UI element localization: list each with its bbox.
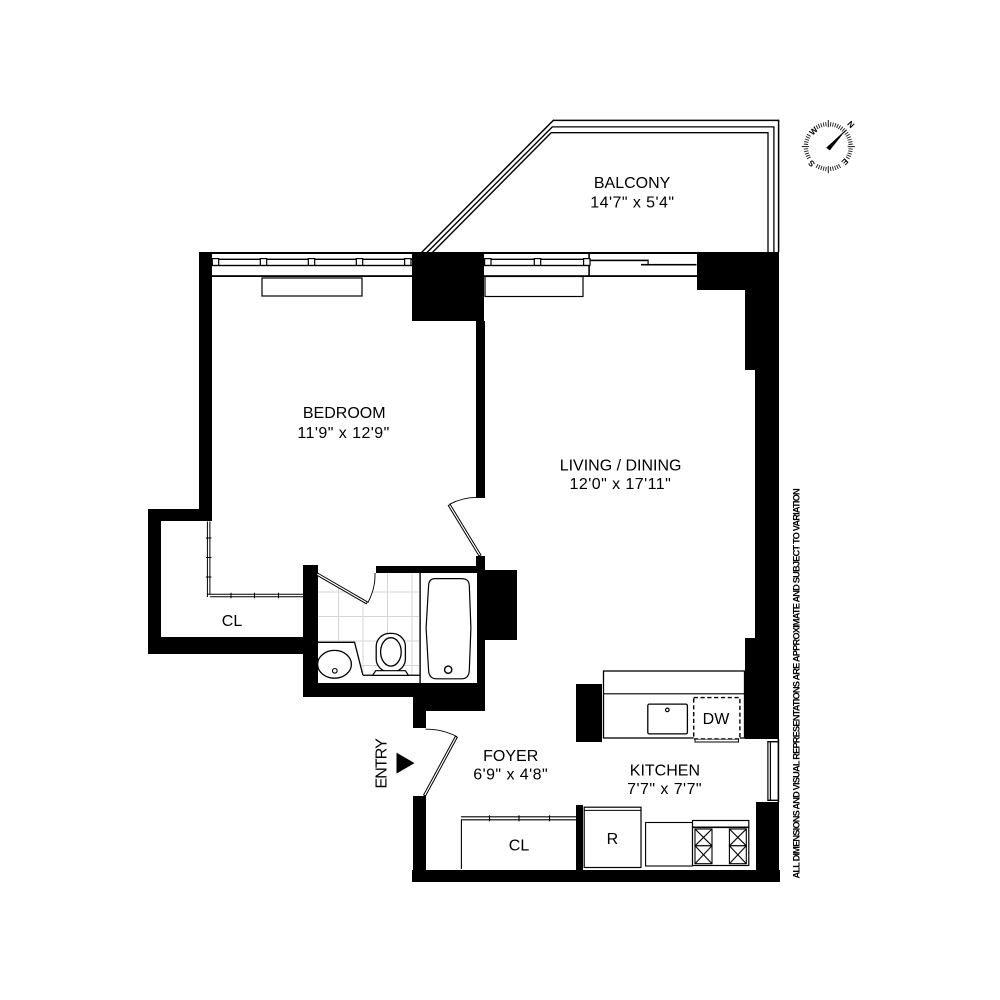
svg-text:12'0" x 17'11": 12'0" x 17'11" bbox=[570, 476, 672, 493]
svg-text:BEDROOM: BEDROOM bbox=[303, 405, 386, 422]
svg-text:KITCHEN: KITCHEN bbox=[630, 762, 700, 779]
svg-text:FOYER: FOYER bbox=[483, 748, 538, 765]
svg-text:LIVING / DINING: LIVING / DINING bbox=[560, 458, 682, 475]
svg-text:7'7" x 7'7": 7'7" x 7'7" bbox=[627, 781, 702, 798]
svg-text:ENTRY: ENTRY bbox=[374, 738, 391, 789]
svg-text:DW: DW bbox=[703, 711, 731, 728]
svg-text:14'7" x 5'4": 14'7" x 5'4" bbox=[590, 195, 674, 212]
svg-text:ALL DIMENSIONS AND VISUAL REPR: ALL DIMENSIONS AND VISUAL REPRESENTATION… bbox=[792, 488, 802, 878]
svg-text:R: R bbox=[607, 831, 619, 848]
svg-text:11'9" x 12'9": 11'9" x 12'9" bbox=[297, 425, 389, 442]
svg-text:BALCONY: BALCONY bbox=[594, 175, 671, 192]
svg-text:CL: CL bbox=[509, 838, 530, 855]
svg-text:CL: CL bbox=[222, 613, 243, 630]
svg-text:6'9" x 4'8": 6'9" x 4'8" bbox=[473, 766, 548, 783]
